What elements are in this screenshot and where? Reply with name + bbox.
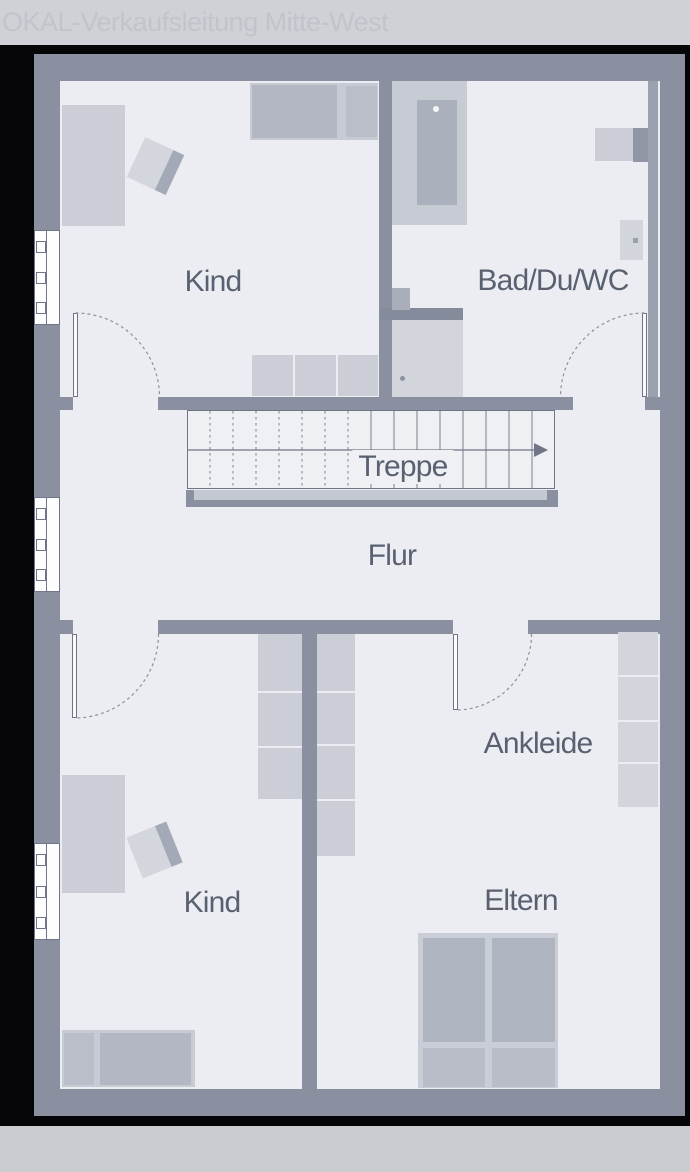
label-kind-top: Kind xyxy=(185,265,242,299)
label-bad: Bad/Du/WC xyxy=(477,264,628,298)
label-kind-bottom: Kind xyxy=(184,886,241,920)
label-treppe: Treppe xyxy=(352,450,453,484)
footer-band xyxy=(0,1126,690,1172)
label-flur: Flur xyxy=(368,539,416,573)
watermark-text: OKAL-Verkaufsleitung Mitte-West xyxy=(0,0,690,45)
plan-linework xyxy=(34,54,685,1116)
watermark-band: OKAL-Verkaufsleitung Mitte-West xyxy=(0,0,690,45)
floorplan-page: { "watermark": "OKAL-Verkaufsleitung Mit… xyxy=(0,0,690,1172)
label-ankleide: Ankleide xyxy=(484,727,593,761)
label-eltern: Eltern xyxy=(484,884,558,918)
floor-plan: Kind Bad/Du/WC Treppe Flur Ankleide Kind… xyxy=(34,54,685,1116)
